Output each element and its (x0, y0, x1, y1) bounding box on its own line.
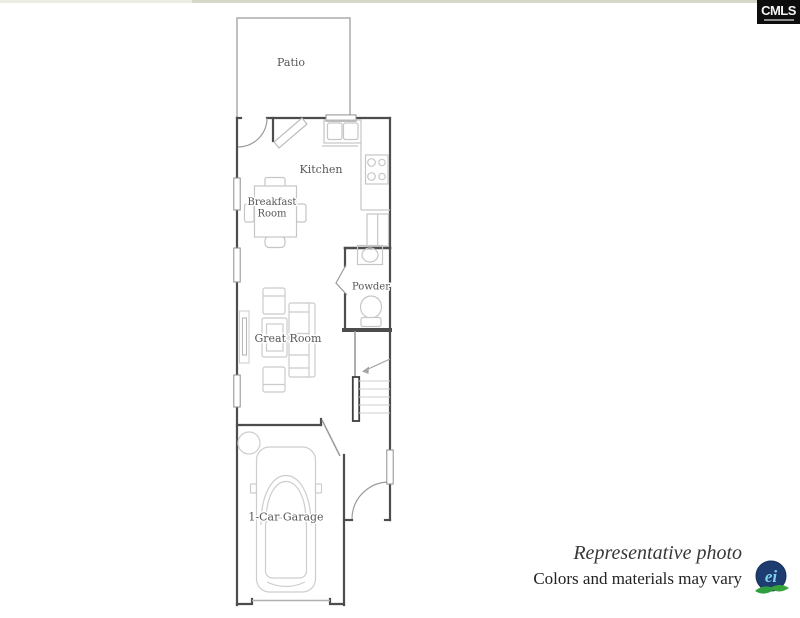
ei-builder-logo: ei (751, 558, 793, 600)
front-door-arc (352, 482, 389, 519)
car-mirror (316, 484, 322, 493)
ei-logo-text: ei (765, 567, 778, 586)
chair (265, 237, 285, 248)
window-right-entry (387, 450, 393, 484)
kitchen-fixtures (322, 120, 390, 246)
patio-label: Patio (277, 56, 305, 69)
stair-railing (353, 377, 359, 421)
armchair (263, 367, 285, 392)
powder-door-leaf (336, 265, 347, 295)
representative-photo-text: Representative photo (533, 541, 742, 565)
stair-treads (359, 381, 390, 413)
garage-label: 1-Car Garage (248, 511, 323, 524)
garage-entry-door-leaf (322, 420, 340, 456)
toilet-bowl (361, 296, 382, 318)
water-heater (238, 432, 260, 454)
window-left-middle (234, 248, 240, 282)
breakfast-room-label-line2: Room (257, 209, 287, 220)
room-labels: Patio Kitchen Breakfast Room Powder Grea… (248, 56, 391, 524)
window-left-lower (234, 375, 240, 407)
listing-photo-canvas: CMLS (0, 0, 800, 618)
great-room-label: Great Room (255, 332, 323, 345)
toilet-tank (361, 318, 381, 327)
disclaimer-caption: Representative photo Colors and material… (533, 541, 742, 590)
window-left-upper (234, 178, 240, 210)
tv-console (240, 311, 250, 363)
car-mirror (251, 484, 257, 493)
patio-entry-door-arc (238, 118, 267, 147)
kitchen-label: Kitchen (300, 163, 343, 176)
stairs (353, 331, 390, 421)
colors-vary-text: Colors and materials may vary (533, 568, 742, 590)
breakfast-room-label-line1: Breakfast (248, 197, 297, 208)
chair (297, 204, 307, 222)
closet-door-leaf (274, 118, 307, 148)
armchair (263, 288, 285, 314)
stair-direction-arrow (366, 359, 390, 370)
powder-label: Powder (352, 282, 390, 293)
kitchen-counter (322, 143, 390, 210)
floor-plan: Patio Kitchen Breakfast Room Powder Grea… (0, 0, 800, 618)
